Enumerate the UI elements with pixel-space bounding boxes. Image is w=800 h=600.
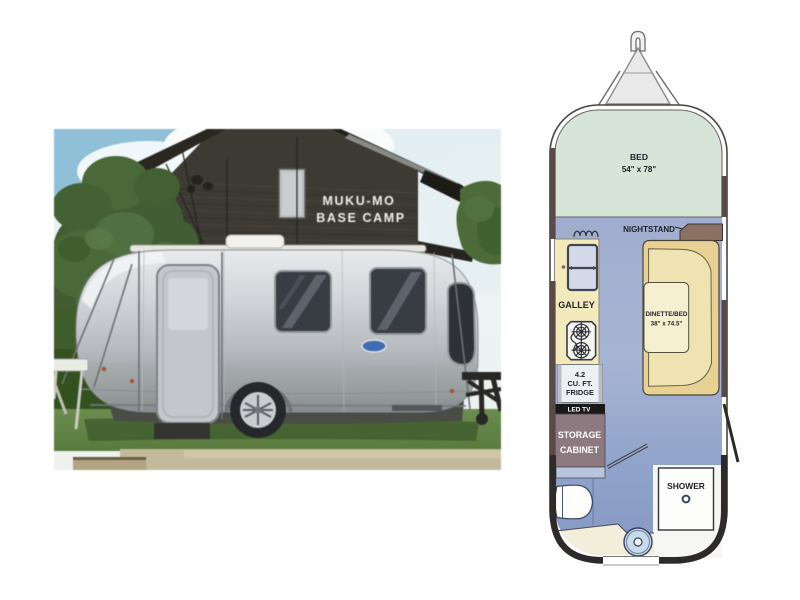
svg-text:CABINET: CABINET [560,445,600,455]
svg-text:GALLEY: GALLEY [558,300,595,310]
svg-text:FRIDGE: FRIDGE [566,388,594,397]
svg-text:4.2: 4.2 [575,370,585,379]
svg-text:STORAGE: STORAGE [558,430,601,440]
svg-text:38" x 74.5": 38" x 74.5" [651,321,683,328]
svg-text:DINETTE/BED: DINETTE/BED [646,311,688,318]
svg-text:LED TV: LED TV [568,407,591,414]
svg-text:BED: BED [630,152,648,162]
svg-text:BASE CAMP: BASE CAMP [316,211,405,225]
svg-text:54" x 78": 54" x 78" [622,165,656,174]
svg-text:SHOWER: SHOWER [667,481,705,491]
svg-text:CU. FT.: CU. FT. [567,379,592,388]
svg-text:NIGHTSTAND: NIGHTSTAND [623,225,675,234]
svg-text:MUKU-MO: MUKU-MO [323,194,396,208]
